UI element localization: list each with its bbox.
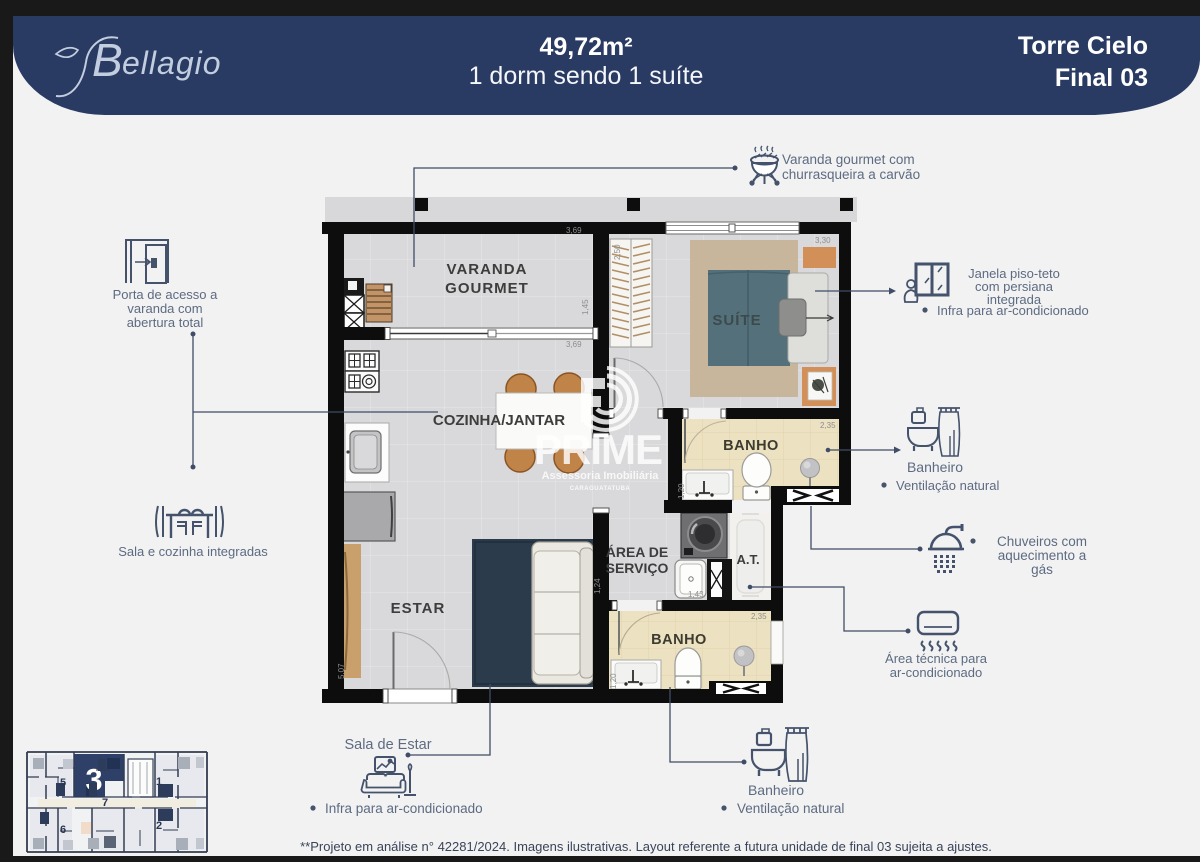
svg-text:3,69: 3,69 <box>566 340 582 349</box>
svg-text:49,72m²: 49,72m² <box>539 33 632 61</box>
svg-text:7: 7 <box>102 797 108 809</box>
svg-text:2,35: 2,35 <box>751 612 767 621</box>
svg-text:PRIME: PRIME <box>534 426 662 473</box>
svg-text:2,35: 2,35 <box>820 421 836 430</box>
svg-text:GOURMET: GOURMET <box>445 280 529 297</box>
svg-text:2: 2 <box>156 820 162 832</box>
svg-text:ellagio: ellagio <box>122 45 222 81</box>
svg-text:Chuveiros com: Chuveiros com <box>997 534 1087 549</box>
svg-text:ESTAR: ESTAR <box>391 600 446 617</box>
svg-text:1: 1 <box>156 776 162 788</box>
svg-text:VARANDA: VARANDA <box>447 261 528 278</box>
svg-text:3,69: 3,69 <box>566 226 582 235</box>
svg-text:churrasqueira a carvão: churrasqueira a carvão <box>782 167 920 182</box>
svg-text:Sala e cozinha integradas: Sala e cozinha integradas <box>118 544 268 559</box>
svg-text:BANHO: BANHO <box>723 438 779 454</box>
svg-text:1 dorm sendo 1 suíte: 1 dorm sendo 1 suíte <box>469 62 704 90</box>
svg-text:5,07: 5,07 <box>337 663 346 679</box>
svg-text:1,24: 1,24 <box>593 578 602 594</box>
svg-text:Infra para ar-condicionado: Infra para ar-condicionado <box>325 801 483 816</box>
svg-text:CARAGUATATUBA: CARAGUATATUBA <box>570 486 631 492</box>
svg-text:varanda com: varanda com <box>127 301 202 316</box>
svg-text:Final 03: Final 03 <box>1055 64 1148 92</box>
svg-text:Banheiro: Banheiro <box>907 459 963 475</box>
svg-text:Varanda gourmet com: Varanda gourmet com <box>782 152 915 167</box>
svg-text:3,30: 3,30 <box>815 236 831 245</box>
svg-text:abertura total: abertura total <box>127 315 204 330</box>
svg-text:Porta de acesso a: Porta de acesso a <box>113 287 219 302</box>
svg-text:1,20: 1,20 <box>677 483 686 499</box>
svg-text:Banheiro: Banheiro <box>748 782 804 798</box>
svg-text:aquecimento a: aquecimento a <box>998 548 1087 563</box>
svg-text:Área técnica para: Área técnica para <box>885 651 988 666</box>
svg-text:SUÍTE: SUÍTE <box>712 312 761 329</box>
svg-text:SERVIÇO: SERVIÇO <box>606 560 669 576</box>
svg-text:Ventilação natural: Ventilação natural <box>896 478 999 493</box>
svg-text:Infra para ar-condicionado: Infra para ar-condicionado <box>937 303 1089 318</box>
svg-text:2,50: 2,50 <box>613 244 622 260</box>
svg-text:1,43: 1,43 <box>688 590 704 599</box>
svg-text:BANHO: BANHO <box>651 632 707 648</box>
svg-text:ÁREA DE: ÁREA DE <box>606 544 669 560</box>
svg-text:gás: gás <box>1031 562 1053 577</box>
svg-text:Assessoria Imobiliária: Assessoria Imobiliária <box>542 470 660 482</box>
svg-text:1,20: 1,20 <box>609 673 618 689</box>
svg-text:Ventilação natural: Ventilação natural <box>737 801 844 816</box>
svg-text:ar-condicionado: ar-condicionado <box>890 665 983 680</box>
svg-text:1,45: 1,45 <box>581 299 590 315</box>
svg-text:A.T.: A.T. <box>736 552 759 567</box>
svg-text:6: 6 <box>60 824 66 836</box>
svg-text:Torre Cielo: Torre Cielo <box>1018 32 1148 60</box>
svg-text:Sala de Estar: Sala de Estar <box>344 737 431 753</box>
svg-text:**Projeto em análise n° 42281/: **Projeto em análise n° 42281/2024. Imag… <box>300 839 992 854</box>
svg-text:5: 5 <box>60 777 66 789</box>
